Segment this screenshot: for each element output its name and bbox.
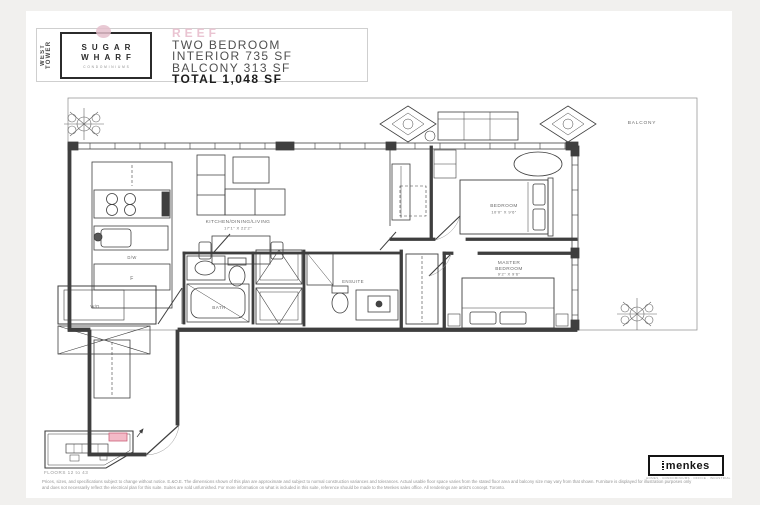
bedroom-label: BEDROOM: [490, 203, 518, 209]
living-furniture: [197, 155, 285, 264]
keyplan-unit-highlight: [109, 433, 127, 441]
master-label-1: MASTER: [498, 260, 521, 266]
bedroom-dims: 10'0" X 9'6": [491, 210, 516, 215]
menkes-wordmark: menkes: [666, 460, 710, 472]
disclaimer-text: Prices, sizes, and specifications subjec…: [42, 479, 694, 491]
washer-dryer-label: W/D: [90, 304, 99, 309]
foyer-cabinet: [392, 164, 426, 220]
keyplan-floors-label: FLOORS 12 to 43: [44, 470, 88, 475]
master-furniture: [448, 278, 568, 328]
menkes-logo: menkes: [648, 455, 724, 476]
shower-closet-boxes: [256, 250, 302, 324]
hall-closet: [406, 254, 438, 324]
balcony-label: BALCONY: [628, 120, 657, 126]
fridge-label: F: [130, 276, 133, 282]
bath-label: BATH: [212, 305, 226, 310]
floorplan-drawing: KITCHEN/DINING/LIVING 17'1" X 22'2" BEDR…: [0, 0, 760, 505]
walls: [68, 142, 579, 456]
kitchen-label: KITCHEN/DINING/LIVING: [206, 219, 271, 225]
ensuite-fixtures: [307, 253, 398, 320]
master-dims: 9'2" X 9'6": [498, 272, 521, 277]
ensuite-label: ENSUITE: [342, 279, 364, 284]
bath-fixtures: [187, 256, 249, 322]
north-arrow-icon: [137, 429, 143, 437]
dishwasher-label: D/W: [127, 255, 136, 260]
kitchen-dims: 17'1" X 22'2": [224, 226, 252, 231]
floorplan-sheet: WEST TOWER SUGAR WHARF CONDOMINIUMS REEF…: [0, 0, 760, 505]
laundry-closets: [58, 286, 182, 354]
menkes-dots-icon: [662, 461, 664, 470]
menkes-tagline: HOMES · CONDOMINIUMS · OFFICE · INDUSTRI…: [646, 476, 722, 480]
balcony-furniture: [380, 106, 596, 142]
plant-icon: [64, 108, 657, 330]
keyplan: [45, 429, 143, 468]
